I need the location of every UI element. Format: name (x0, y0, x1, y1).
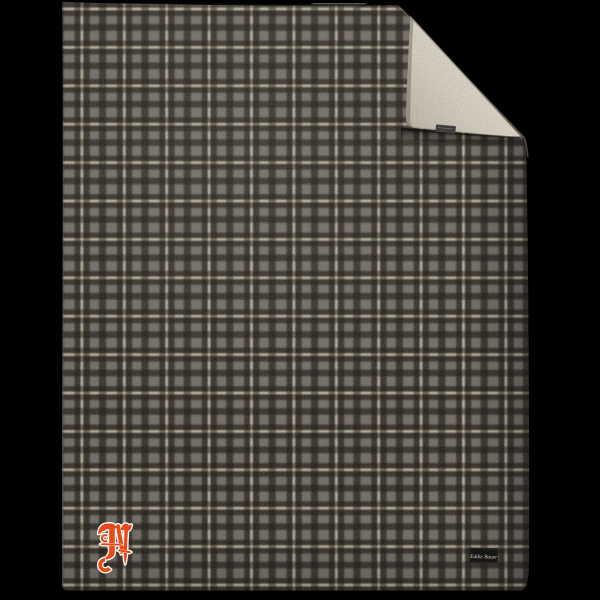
svg-text:Eddie Bauer: Eddie Bauer (469, 554, 498, 561)
